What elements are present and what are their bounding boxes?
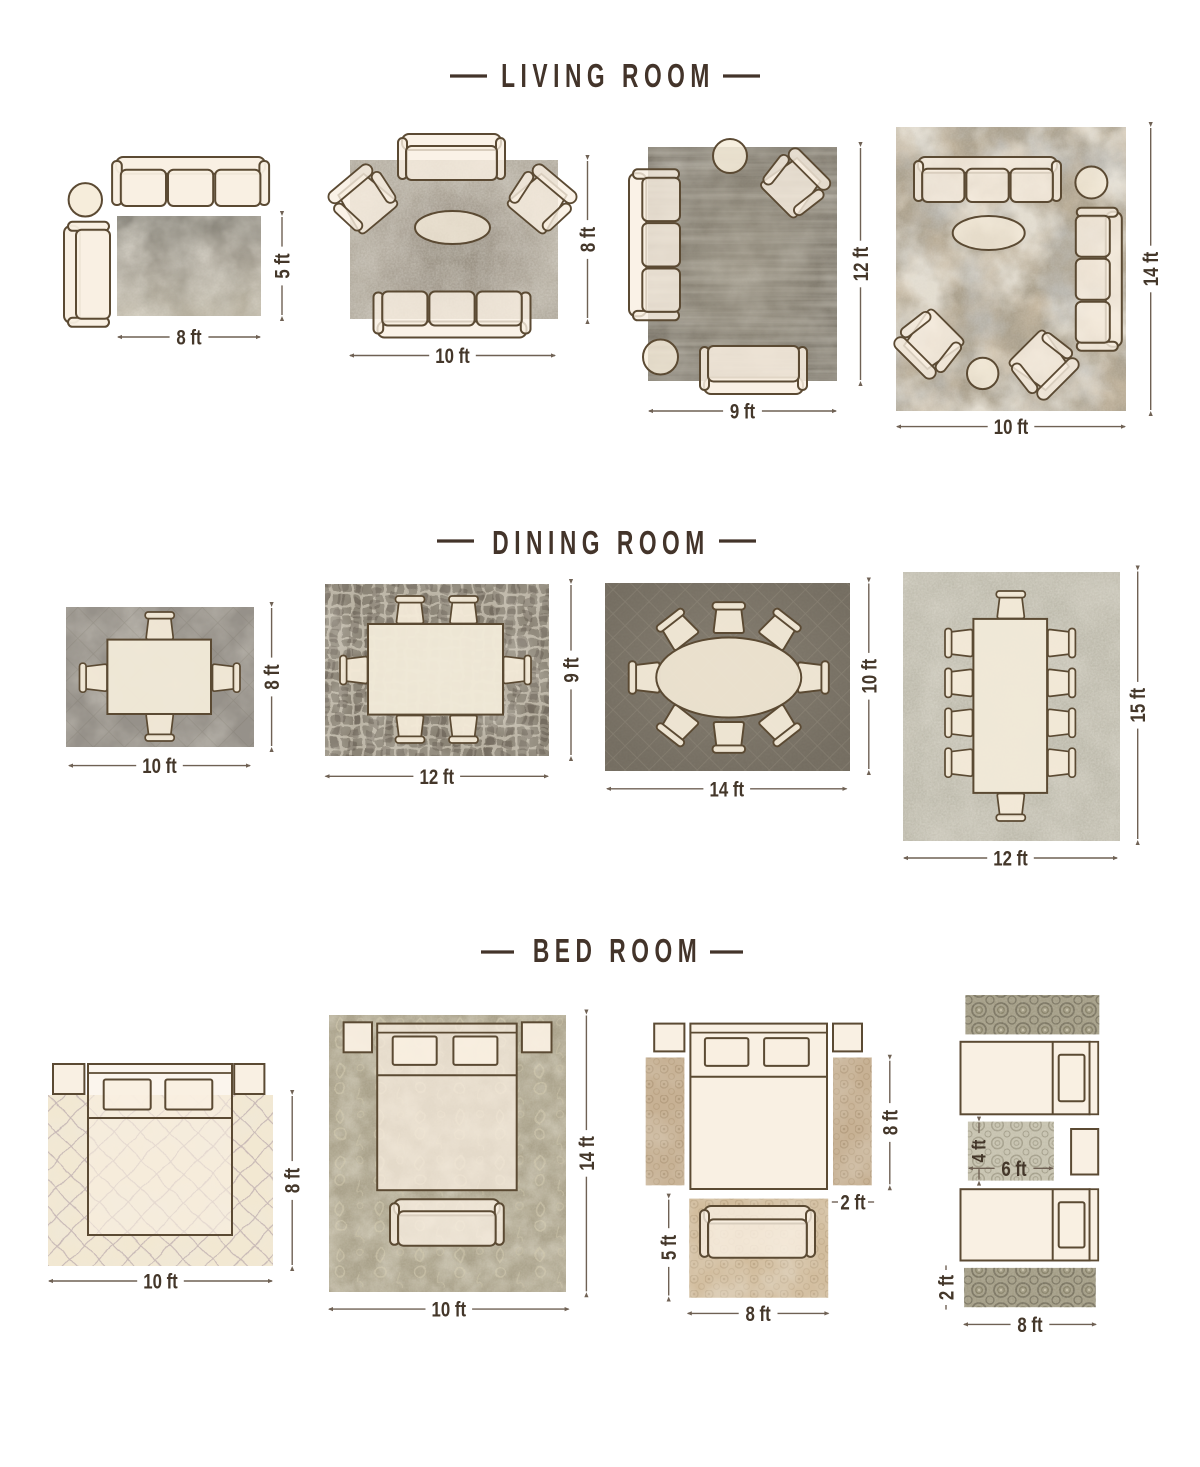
svg-text:10 ft: 10 ft <box>994 416 1029 439</box>
svg-text:12 ft: 12 ft <box>850 246 873 281</box>
svg-text:6 ft: 6 ft <box>1001 1158 1027 1181</box>
svg-text:8 ft: 8 ft <box>176 327 202 350</box>
svg-text:10 ft: 10 ft <box>143 1271 178 1294</box>
svg-text:BED ROOM: BED ROOM <box>533 933 702 970</box>
svg-text:2 ft: 2 ft <box>936 1274 959 1300</box>
svg-text:9 ft: 9 ft <box>561 657 584 683</box>
svg-text:10 ft: 10 ft <box>435 345 470 368</box>
svg-text:12 ft: 12 ft <box>993 848 1028 871</box>
svg-text:2 ft: 2 ft <box>840 1192 866 1215</box>
svg-text:8 ft: 8 ft <box>1017 1314 1043 1337</box>
svg-text:14 ft: 14 ft <box>710 779 745 802</box>
svg-text:8 ft: 8 ft <box>577 226 600 252</box>
svg-text:5 ft: 5 ft <box>659 1234 682 1260</box>
svg-text:8 ft: 8 ft <box>746 1303 772 1326</box>
svg-text:LIVING ROOM: LIVING ROOM <box>501 58 715 95</box>
svg-text:10 ft: 10 ft <box>859 658 882 693</box>
svg-text:4 ft: 4 ft <box>968 1139 990 1162</box>
svg-text:9 ft: 9 ft <box>730 401 756 424</box>
svg-text:14 ft: 14 ft <box>1141 251 1164 286</box>
svg-text:10 ft: 10 ft <box>142 755 177 778</box>
svg-text:5 ft: 5 ft <box>272 253 295 279</box>
svg-text:8 ft: 8 ft <box>880 1109 903 1135</box>
svg-text:10 ft: 10 ft <box>432 1299 467 1322</box>
svg-text:8 ft: 8 ft <box>261 664 284 690</box>
svg-text:8 ft: 8 ft <box>282 1167 305 1193</box>
svg-text:DINING ROOM: DINING ROOM <box>492 525 710 562</box>
svg-text:12 ft: 12 ft <box>420 766 455 789</box>
svg-text:14 ft: 14 ft <box>576 1136 599 1171</box>
svg-text:15 ft: 15 ft <box>1128 687 1151 722</box>
